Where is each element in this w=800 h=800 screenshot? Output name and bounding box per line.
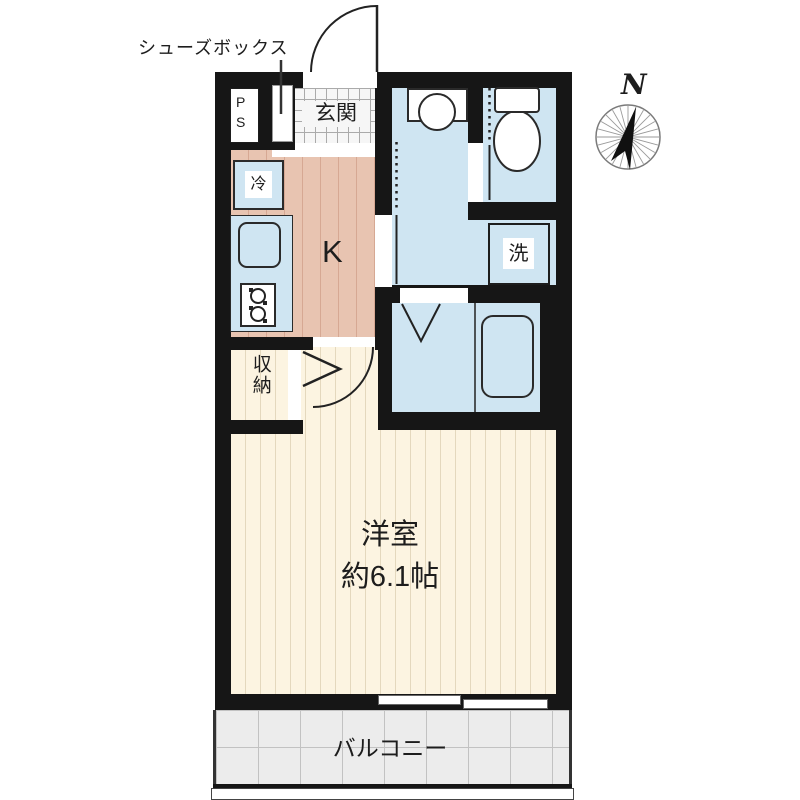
wall-closet-bottom (231, 420, 303, 434)
bath-door-threshold (400, 288, 468, 303)
shoe-box (272, 85, 293, 142)
room-name-label: 洋室 (300, 518, 480, 552)
compass-icon (596, 105, 660, 170)
wall-left (215, 72, 231, 710)
pipe-space-label: P S (236, 92, 245, 133)
bathtub (481, 315, 534, 398)
washbasin-counter (407, 88, 468, 122)
balcony-label: バルコニー (290, 735, 490, 763)
entry-door-arc (311, 6, 377, 72)
closet-door-opening (288, 350, 301, 420)
shoe-box-callout-label: シューズボックス (138, 38, 289, 60)
kitchen-sink (238, 222, 281, 268)
compass-needle (611, 107, 636, 170)
wall-toilet-left (468, 83, 483, 143)
stove (240, 283, 276, 327)
wall-closet-top (215, 337, 313, 350)
window-panel-right (463, 699, 548, 709)
room-door-threshold (313, 337, 373, 347)
washroom-door-opening (375, 215, 392, 287)
balcony-railing (211, 788, 574, 800)
entry-door-threshold (303, 72, 377, 88)
washing-machine-label: 洗 (503, 238, 534, 269)
entrance-label: 玄関 (302, 101, 370, 127)
wall-toilet-bottom (468, 202, 558, 220)
room-size-label: 約6.1帖 (300, 560, 480, 594)
window-panel-left (378, 695, 461, 705)
floor-plan: P S 冷 洗 シューズボックス 玄関 K 収納 洋室 約6.1帖 バルコニー … (0, 0, 800, 800)
storage-label: 収納 (248, 354, 271, 396)
compass-north-label: N (621, 68, 647, 102)
kitchen-label: K (322, 233, 343, 270)
toilet-door-opening (468, 143, 483, 202)
refrigerator-label: 冷 (245, 171, 272, 198)
wall-kitchen-washroom (375, 72, 392, 215)
wall-right (556, 72, 572, 710)
